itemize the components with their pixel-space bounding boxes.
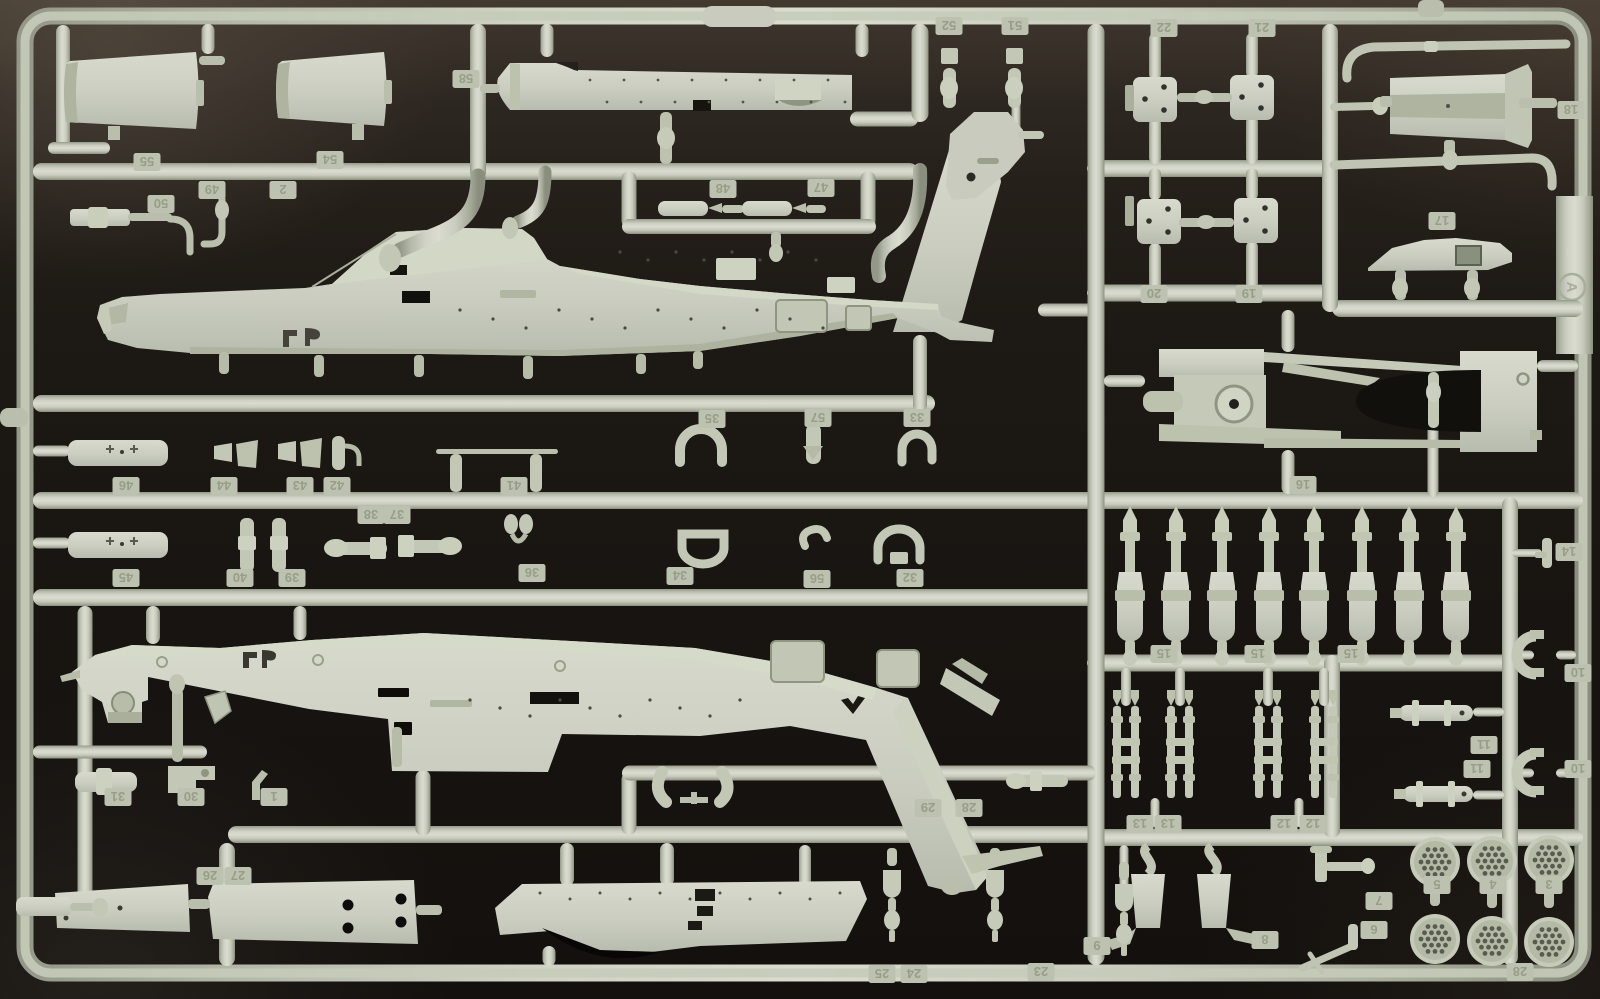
svg-text:14: 14 — [1561, 544, 1576, 559]
svg-text:24: 24 — [906, 966, 921, 981]
svg-text:31: 31 — [111, 789, 125, 804]
svg-text:9: 9 — [1093, 938, 1100, 953]
svg-text:52: 52 — [942, 18, 956, 33]
svg-text:38: 38 — [364, 507, 378, 522]
svg-text:4: 4 — [1489, 877, 1497, 892]
svg-text:47: 47 — [814, 180, 828, 195]
svg-text:13: 13 — [1161, 816, 1175, 831]
svg-text:36: 36 — [525, 565, 539, 580]
svg-text:43: 43 — [293, 478, 307, 493]
svg-text:39: 39 — [285, 570, 299, 585]
svg-text:54: 54 — [322, 152, 337, 167]
svg-text:A: A — [1563, 282, 1580, 293]
svg-text:23: 23 — [1034, 964, 1048, 979]
svg-text:5: 5 — [1433, 877, 1440, 892]
svg-text:30: 30 — [184, 789, 198, 804]
svg-text:21: 21 — [1255, 20, 1269, 35]
svg-text:28: 28 — [962, 800, 976, 815]
svg-text:10: 10 — [1571, 665, 1585, 680]
svg-text:10: 10 — [1571, 761, 1585, 776]
svg-text:12: 12 — [1277, 816, 1291, 831]
svg-text:56: 56 — [810, 571, 824, 586]
svg-text:3: 3 — [1545, 877, 1552, 892]
svg-text:32: 32 — [903, 570, 917, 585]
svg-text:26: 26 — [203, 868, 217, 883]
svg-text:57: 57 — [811, 410, 825, 425]
svg-text:11: 11 — [1470, 761, 1484, 776]
svg-text:33: 33 — [910, 410, 924, 425]
svg-text:22: 22 — [1157, 20, 1171, 35]
svg-text:2: 2 — [279, 182, 286, 197]
svg-text:12: 12 — [1306, 816, 1320, 831]
svg-text:28: 28 — [1513, 964, 1527, 979]
svg-text:8: 8 — [1261, 932, 1268, 947]
svg-text:49: 49 — [205, 182, 219, 197]
svg-text:50: 50 — [154, 196, 168, 211]
svg-text:15: 15 — [1344, 646, 1358, 661]
svg-text:15: 15 — [1157, 646, 1171, 661]
svg-text:34: 34 — [672, 568, 687, 583]
svg-text:37: 37 — [390, 507, 404, 522]
svg-text:45: 45 — [119, 570, 133, 585]
svg-text:29: 29 — [921, 800, 935, 815]
svg-text:46: 46 — [119, 478, 133, 493]
svg-text:27: 27 — [231, 868, 245, 883]
svg-text:15: 15 — [1251, 646, 1265, 661]
svg-text:40: 40 — [233, 570, 247, 585]
svg-text:11: 11 — [1477, 737, 1491, 752]
svg-text:58: 58 — [459, 71, 473, 86]
svg-text:35: 35 — [705, 411, 719, 426]
svg-text:48: 48 — [716, 181, 730, 196]
svg-text:18: 18 — [1564, 102, 1578, 117]
svg-text:41: 41 — [507, 478, 521, 493]
svg-text:6: 6 — [1370, 922, 1377, 937]
svg-text:42: 42 — [330, 478, 344, 493]
svg-text:13: 13 — [1133, 816, 1147, 831]
svg-text:19: 19 — [1242, 286, 1256, 301]
svg-text:55: 55 — [140, 154, 154, 169]
svg-text:44: 44 — [216, 478, 231, 493]
svg-text:25: 25 — [875, 966, 889, 981]
svg-text:51: 51 — [1008, 18, 1022, 33]
svg-text:16: 16 — [1296, 477, 1310, 492]
svg-text:7: 7 — [1375, 893, 1382, 908]
svg-text:17: 17 — [1435, 213, 1449, 228]
svg-text:20: 20 — [1147, 286, 1161, 301]
svg-text:1: 1 — [270, 789, 277, 804]
